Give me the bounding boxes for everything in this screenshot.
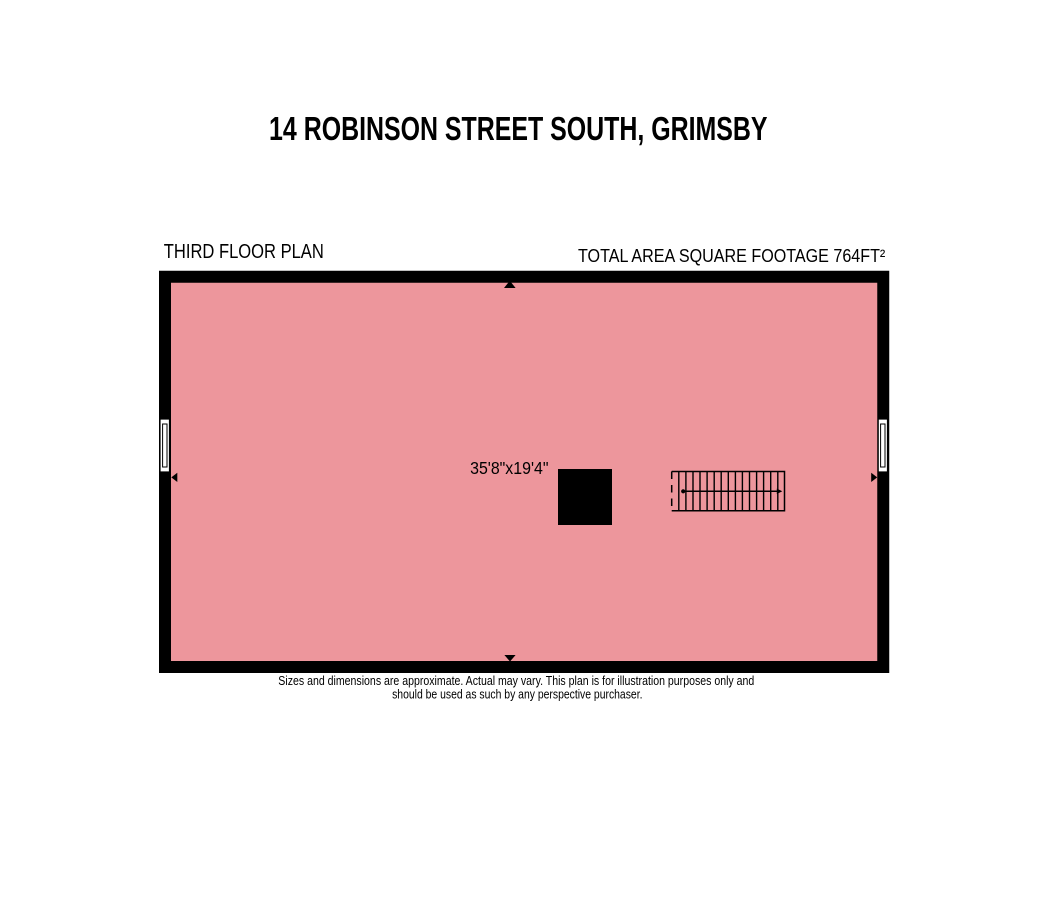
svg-text:should be used as such by any: should be used as such by any perspectiv… [392,687,642,702]
svg-text:14 ROBINSON STREET SOUTH, GRIM: 14 ROBINSON STREET SOUTH, GRIMSBY [269,110,768,147]
svg-text:35'8"x19'4": 35'8"x19'4" [470,458,548,478]
svg-text:THIRD FLOOR PLAN: THIRD FLOOR PLAN [164,241,324,263]
svg-text:TOTAL AREA SQUARE FOOTAGE 764F: TOTAL AREA SQUARE FOOTAGE 764FT² [578,246,885,266]
